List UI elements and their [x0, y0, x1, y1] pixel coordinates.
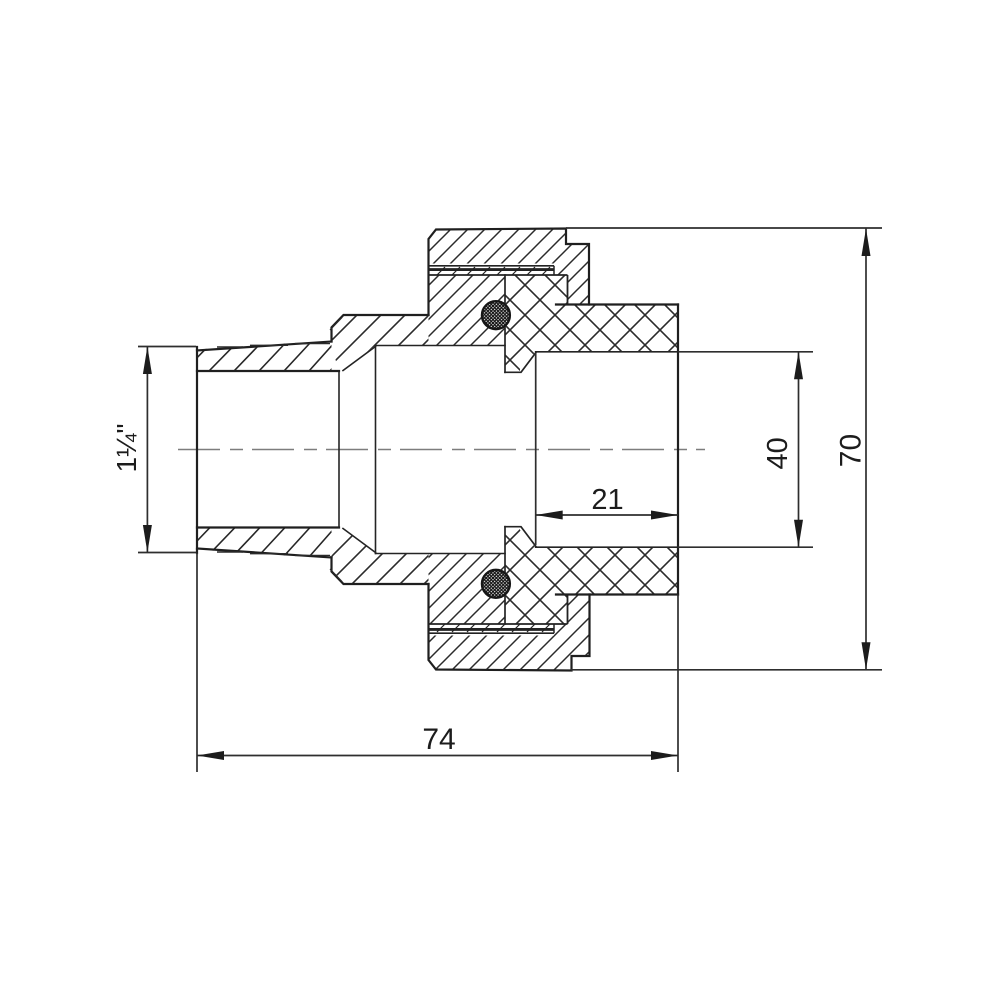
- svg-text:21: 21: [591, 484, 623, 516]
- svg-text:40: 40: [762, 437, 794, 469]
- svg-text:70: 70: [834, 434, 867, 467]
- svg-text:1¼": 1¼": [111, 424, 142, 473]
- svg-text:74: 74: [422, 723, 455, 756]
